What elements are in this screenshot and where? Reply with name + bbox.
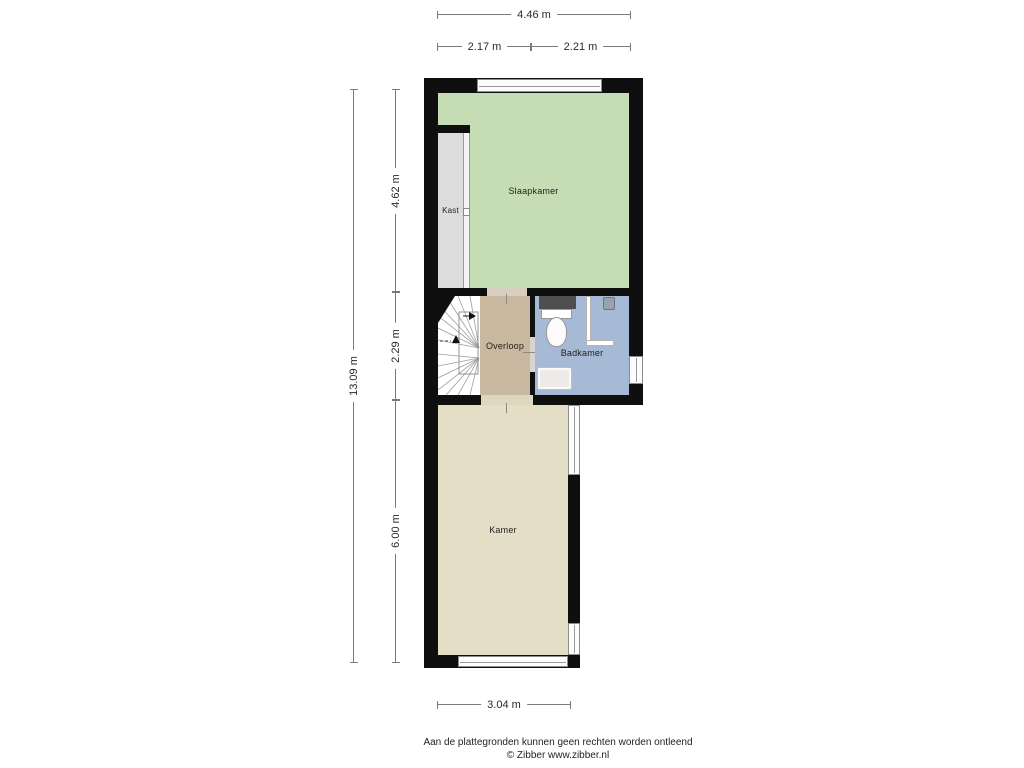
window-kamer-right-upper bbox=[568, 405, 580, 475]
room-label-kamer: Kamer bbox=[489, 525, 517, 535]
dimension-top-left: 2.17 m bbox=[438, 46, 531, 47]
dimension-label: 3.04 m bbox=[481, 699, 527, 711]
wall-kamer-right bbox=[568, 475, 580, 623]
wall-left bbox=[424, 78, 438, 668]
door-opening-badkamer bbox=[530, 337, 535, 372]
dimension-label: 4.46 m bbox=[511, 9, 557, 21]
wall-slaapkamer-overloop bbox=[438, 288, 629, 296]
wall-middle-kamer bbox=[438, 395, 643, 405]
window-kamer-bottom bbox=[458, 656, 568, 667]
window-slaapkamer-top bbox=[477, 79, 602, 92]
dimension-label: 2.29 m bbox=[390, 323, 402, 369]
door-tick bbox=[506, 403, 507, 413]
footer: Aan de plattegronden kunnen geen rechten… bbox=[423, 736, 692, 762]
wall-overloop-badkamer-upper bbox=[530, 296, 535, 337]
door-opening-kamer bbox=[481, 395, 533, 405]
wall-kast-top bbox=[424, 125, 470, 133]
dimension-top-total: 4.46 m bbox=[438, 14, 630, 15]
dimension-top-right: 2.21 m bbox=[531, 46, 630, 47]
window-badkamer-right bbox=[629, 356, 643, 384]
shower-screen-icon bbox=[586, 340, 614, 346]
floor-plan: Slaapkamer Kast Overloop Badkamer Kamer bbox=[0, 0, 1024, 768]
shower-screen-icon bbox=[586, 296, 591, 343]
dimension-label: 13.09 m bbox=[348, 350, 360, 402]
dimension-left-middle: 2.29 m bbox=[395, 292, 396, 400]
dimension-label: 2.21 m bbox=[558, 41, 604, 53]
room-label-badkamer: Badkamer bbox=[561, 348, 604, 358]
room-kamer: Kamer bbox=[438, 405, 568, 655]
dimension-label: 2.17 m bbox=[462, 41, 508, 53]
wall-overloop-badkamer-lower bbox=[530, 372, 535, 395]
footer-disclaimer: Aan de plattegronden kunnen geen rechten… bbox=[423, 736, 692, 749]
dimension-label: 6.00 m bbox=[390, 508, 402, 554]
room-kast: Kast bbox=[438, 133, 463, 288]
dimension-left-top: 4.62 m bbox=[395, 90, 396, 292]
dimension-left-total: 13.09 m bbox=[353, 90, 354, 662]
room-label-kast: Kast bbox=[442, 206, 459, 215]
room-label-overloop: Overloop bbox=[486, 341, 524, 351]
footer-copyright: © Zibber www.zibber.nl bbox=[423, 749, 692, 762]
sink-icon bbox=[603, 297, 615, 310]
stairs-icon bbox=[438, 296, 480, 395]
bathtub-icon bbox=[537, 367, 572, 390]
room-overloop: Overloop bbox=[480, 296, 530, 395]
counter-icon bbox=[539, 296, 576, 309]
door-tick bbox=[506, 294, 507, 304]
window-kamer-right-lower bbox=[568, 623, 580, 655]
sliding-door-handle-icon bbox=[463, 208, 470, 216]
door-tick bbox=[523, 352, 535, 353]
door-opening-slaapkamer bbox=[487, 288, 527, 296]
dimension-label: 4.62 m bbox=[390, 168, 402, 214]
toilet-icon bbox=[546, 317, 567, 347]
dimension-left-bottom: 6.00 m bbox=[395, 400, 396, 662]
dimension-bottom: 3.04 m bbox=[438, 704, 570, 705]
room-label-slaapkamer: Slaapkamer bbox=[508, 186, 558, 196]
